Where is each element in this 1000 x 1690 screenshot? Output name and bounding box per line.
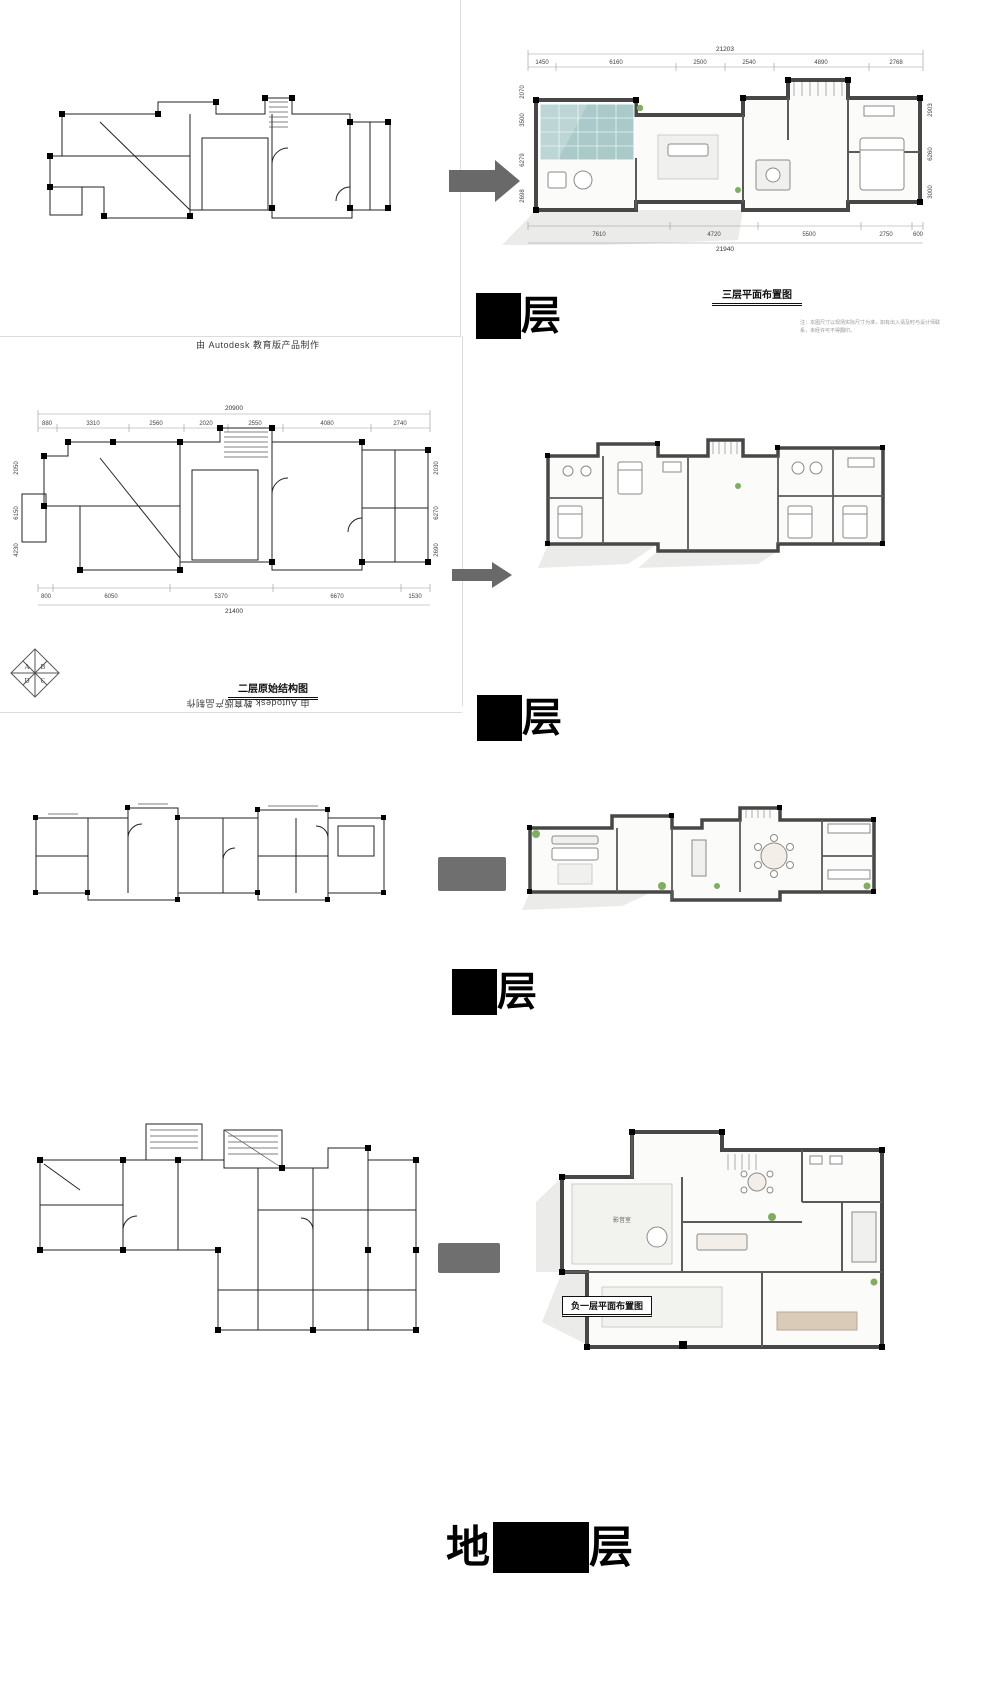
floor3-big-label-visible: 层 — [521, 293, 564, 339]
sheet-divider-horizontal-2 — [0, 712, 462, 713]
dim-text: 2560 — [149, 421, 163, 427]
floor2-dims-left: 2050 6150 4230 — [14, 461, 20, 557]
floor2-cad-walls — [22, 428, 428, 570]
dim-text: 20900 — [225, 405, 243, 412]
compass-logo: A B D C — [8, 646, 62, 700]
basement-big-label-blocked: 下一 — [493, 1522, 589, 1573]
arrow-bar — [438, 857, 506, 891]
basement-big-label: 地下一层 — [446, 1526, 636, 1570]
floor2-big-label: 二层 — [477, 698, 565, 738]
basement-room-label: 影音室 — [613, 1216, 631, 1224]
floor3-plan-shadows — [502, 210, 743, 245]
floor3-plan-title: 三层平面布置图 — [712, 286, 802, 306]
dim-text: 2030 — [434, 461, 440, 475]
dim-text: 7610 — [592, 232, 606, 238]
basement-big-label-visible: 层 — [589, 1522, 636, 1573]
arrow-right-icon — [452, 560, 514, 590]
basement-big-label-prefix: 地 — [446, 1522, 493, 1573]
dim-text: 4080 — [320, 421, 334, 427]
arrow-bar — [438, 1243, 500, 1273]
logo-letter: C — [41, 677, 46, 685]
dim-text: 2698 — [520, 189, 526, 203]
floor1-cad-window-ticks — [48, 804, 318, 814]
floor2-cad-stair-hatch — [224, 432, 268, 457]
dim-text: 2020 — [199, 421, 213, 427]
floor2-furnished-plan — [538, 426, 893, 571]
floor3-big-label: 三层 — [476, 296, 564, 336]
dim-text: 880 — [42, 421, 53, 427]
dim-text: 3310 — [86, 421, 100, 427]
dim-text: 2903 — [928, 103, 934, 117]
floorplan-comparison-sheet: { "watermarks": { "top": "由 Autodesk 教育版… — [0, 0, 1000, 1690]
basement-original-cad-plan — [28, 1120, 425, 1338]
floor3-disclaimer-note: 注：本图尺寸以现场实际尺寸为准，如有出入请及时与设计师联系，未经许可不得翻印。 — [800, 320, 940, 335]
dim-text: 2550 — [248, 421, 262, 427]
dim-text: 600 — [913, 232, 924, 238]
dim-text: 6050 — [104, 594, 118, 600]
basement-cad-walls — [40, 1124, 416, 1330]
floor2-plants — [735, 483, 741, 489]
basement-furnished-plan: 影音室 — [522, 1122, 910, 1360]
dim-text: 4230 — [14, 543, 20, 557]
dim-text: 2540 — [742, 60, 756, 66]
dim-text: 2740 — [393, 421, 407, 427]
autodesk-watermark-bottom: 由 Autodesk 教育版产品制作 — [186, 697, 310, 710]
dim-text: 6150 — [14, 506, 20, 520]
dim-text: 6260 — [928, 147, 934, 161]
dim-text: 6270 — [434, 506, 440, 520]
sheet-divider-horizontal — [0, 336, 461, 337]
floor1-big-label-visible: 层 — [497, 969, 540, 1015]
dim-text: 3000 — [928, 185, 934, 199]
dim-text: 21203 — [716, 46, 734, 53]
basement-cad-stair-hatch — [150, 1130, 282, 1168]
floor3-furnished-plan: 21203 1450 6160 2500 2540 4890 2768 — [488, 40, 938, 252]
dim-text: 2690 — [434, 543, 440, 557]
floor1-big-label: 一层 — [452, 972, 540, 1012]
logo-letter: D — [24, 677, 29, 685]
dim-text: 6160 — [609, 60, 623, 66]
floor3-dims-left: 2070 3500 6279 2698 — [520, 85, 526, 203]
logo-letter: B — [41, 663, 46, 671]
basement-plan-title: 负一层平面布置图 — [562, 1296, 652, 1317]
floor3-glass-sunroom — [540, 104, 634, 160]
floor1-cad-walls — [36, 808, 384, 900]
dim-text: 2768 — [889, 60, 903, 66]
logo-letter: A — [24, 663, 29, 671]
floor1-plan-shadows — [522, 892, 652, 910]
dim-text: 4720 — [707, 232, 721, 238]
floor1-cad-columns — [33, 805, 386, 902]
basement-cad-columns — [37, 1145, 419, 1333]
floor1-original-cad-plan — [28, 798, 393, 910]
dim-text: 800 — [41, 594, 52, 600]
floor1-big-label-blocked: 一 — [452, 969, 497, 1015]
floor2-dims-right: 2030 6270 2690 — [434, 461, 440, 557]
sheet-divider-vertical-mid — [462, 336, 463, 706]
dim-text: 3500 — [520, 113, 526, 127]
floor2-dims-bottom: 800 6050 5370 6670 1530 21400 — [38, 584, 430, 615]
dim-text: 6279 — [520, 153, 526, 167]
floor2-original-cad-plan: 20900 880 3310 2560 2020 2550 4080 2740 — [10, 398, 445, 653]
dim-text: 5500 — [802, 232, 816, 238]
dim-text: 2750 — [879, 232, 893, 238]
dim-text: 21940 — [716, 246, 734, 252]
autodesk-watermark-top: 由 Autodesk 教育版产品制作 — [196, 338, 320, 351]
dim-text: 1450 — [535, 60, 549, 66]
floor3-dims-right: 2903 6260 3000 — [928, 103, 934, 199]
floor2-plan-walls — [548, 440, 883, 551]
dim-text: 6670 — [330, 594, 344, 600]
floor3-cad-walls — [50, 98, 390, 218]
floor3-original-cad-plan — [40, 92, 400, 232]
dim-text: 2070 — [520, 85, 526, 99]
dim-text: 2050 — [14, 461, 20, 475]
floor3-big-label-blocked: 三 — [476, 293, 521, 339]
floor2-big-label-visible: 层 — [522, 695, 565, 741]
dim-text: 21400 — [225, 608, 243, 615]
dim-text: 5370 — [214, 594, 228, 600]
dim-text: 1530 — [408, 594, 422, 600]
dim-text: 4890 — [814, 60, 828, 66]
floor2-big-label-blocked: 二 — [477, 695, 522, 741]
floor1-furnished-plan — [522, 800, 884, 912]
dim-text: 2500 — [693, 60, 707, 66]
floor3-dims-top: 21203 1450 6160 2500 2540 4890 2768 — [528, 46, 923, 71]
